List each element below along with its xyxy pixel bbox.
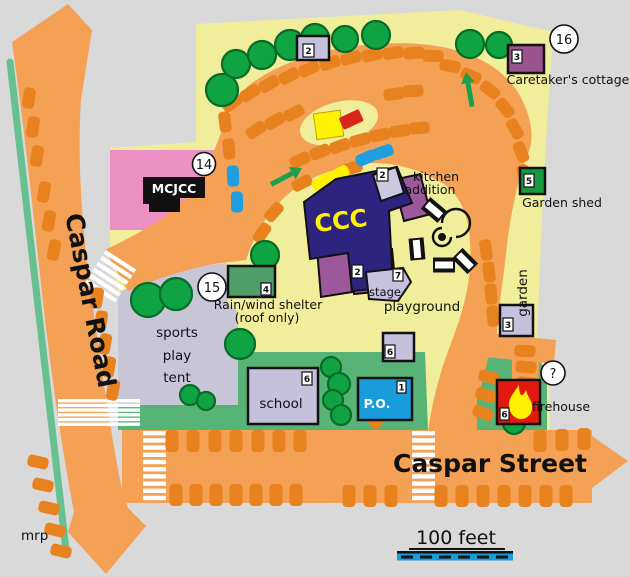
- svg-text:2: 2: [354, 268, 360, 278]
- tree-icon: [248, 41, 276, 69]
- svg-text:5: 5: [526, 177, 532, 187]
- yellow-marker-square: [313, 110, 343, 140]
- svg-text:3: 3: [514, 53, 520, 63]
- door-icon-ccc-south: 2: [352, 265, 363, 278]
- crosswalk-stripe: [412, 438, 435, 442]
- parking-spot: [270, 484, 283, 506]
- crosswalk-stripe: [143, 481, 166, 485]
- parking-spot: [402, 84, 424, 97]
- stage-label: stage: [369, 285, 401, 299]
- tree-icon: [331, 405, 351, 425]
- mrp-label: mrp: [21, 528, 48, 544]
- svg-text:16: 16: [556, 33, 573, 48]
- scale-dash: [401, 556, 413, 559]
- scale-bar: 100 feet: [397, 527, 513, 561]
- scale-dash: [420, 556, 432, 559]
- door-icon-school: 6: [302, 372, 312, 385]
- map-canvas: MCJCC CCC stage: [0, 0, 630, 577]
- tree-icon: [225, 329, 255, 359]
- parking-spot: [484, 283, 498, 305]
- marker-unknown: ?: [541, 361, 565, 385]
- crosswalk-stripe: [143, 460, 166, 464]
- parking-spot: [514, 344, 536, 357]
- crosswalk-stripe: [143, 445, 166, 449]
- parking-spot: [170, 484, 183, 506]
- parking-spot: [49, 543, 72, 559]
- svg-text:7: 7: [395, 272, 401, 282]
- crosswalk-stripe: [143, 474, 166, 478]
- scale-dash: [439, 556, 451, 559]
- parking-spot: [578, 428, 591, 450]
- door-icon-shelter: 4: [261, 283, 271, 296]
- parking-spot: [26, 454, 49, 470]
- scale-dash: [458, 556, 470, 559]
- parking-spot: [515, 360, 537, 373]
- tree-icon: [456, 30, 484, 58]
- garden-label: garden: [515, 269, 531, 317]
- parking-spot-blue: [231, 191, 243, 212]
- tree-icon: [160, 278, 192, 310]
- tree-icon: [222, 50, 250, 78]
- caretakers-cottage-label: Caretaker's cottage: [507, 72, 630, 87]
- crosswalk-stripe: [412, 489, 435, 493]
- parking-spot: [343, 485, 356, 507]
- parking-spot: [230, 430, 243, 452]
- svg-text:2: 2: [305, 47, 311, 57]
- parking-spot: [560, 485, 573, 507]
- svg-text:15: 15: [204, 281, 221, 296]
- parking-spot: [250, 484, 263, 506]
- svg-text:6: 6: [387, 348, 393, 358]
- parking-spot: [252, 430, 265, 452]
- marker-14: 14: [193, 153, 216, 176]
- tree-icon: [197, 392, 215, 410]
- crosswalk-stripe: [412, 496, 435, 500]
- svg-text:14: 14: [196, 158, 213, 173]
- svg-text:?: ?: [550, 367, 557, 382]
- playground-label: playground: [384, 299, 460, 315]
- svg-text:1: 1: [398, 384, 404, 394]
- tree-icon: [362, 21, 390, 49]
- marker-16: 16: [550, 25, 578, 53]
- caspar-community-map: MCJCC CCC stage: [0, 0, 630, 577]
- crosswalk-stripe: [58, 408, 140, 411]
- rain-shelter-label-2: (roof only): [235, 310, 300, 325]
- crosswalk-stripe: [58, 404, 140, 407]
- door-icon-garden-shed: 5: [524, 174, 534, 187]
- crosswalk-stripe: [58, 413, 140, 416]
- door-icon-firehouse: 6: [500, 408, 509, 421]
- parking-spot: [519, 485, 532, 507]
- door-icon-po: 1: [397, 381, 406, 394]
- svg-text:4: 4: [263, 286, 269, 296]
- parking-spot: [187, 430, 200, 452]
- parking-spot: [403, 46, 425, 59]
- parking-spot: [540, 485, 553, 507]
- tree-icon: [131, 283, 165, 317]
- door-icon-east-shed: 3: [503, 318, 513, 331]
- svg-text:6: 6: [304, 375, 310, 385]
- crosswalk-stripe: [58, 423, 140, 426]
- crosswalk-stripe: [412, 481, 435, 485]
- kitchen-label-2: addition: [405, 182, 456, 197]
- crosswalk-stripe: [143, 467, 166, 471]
- parking-spot: [290, 484, 303, 506]
- svg-text:3: 3: [505, 321, 511, 331]
- garden-shed-label: Garden shed: [522, 195, 602, 210]
- parking-spot: [435, 485, 448, 507]
- bench-icon: [410, 238, 425, 259]
- parking-spot-blue: [226, 165, 239, 187]
- bench-icon: [434, 259, 454, 272]
- crosswalk-stripe: [143, 453, 166, 457]
- tree-icon: [332, 26, 358, 52]
- crosswalk-stripe: [143, 431, 166, 435]
- crosswalk-stripe: [143, 438, 166, 442]
- mcjcc-label: MCJCC: [152, 181, 197, 196]
- door-icon-kitchen: 2: [377, 168, 388, 181]
- parking-spot: [556, 429, 569, 451]
- svg-text:6: 6: [501, 411, 507, 421]
- door-icon-caretakers: 3: [512, 50, 522, 63]
- parking-spot: [422, 50, 443, 63]
- svg-text:2: 2: [379, 171, 385, 181]
- door-icon-north-shed: 2: [303, 44, 314, 57]
- scale-label: 100 feet: [416, 527, 496, 549]
- parking-spot: [230, 484, 243, 506]
- parking-spot: [477, 485, 490, 507]
- po-label: P.O.: [364, 396, 391, 411]
- firehouse-label: firehouse: [532, 399, 590, 414]
- sports-label-1: sports: [156, 325, 198, 341]
- parking-spot: [210, 484, 223, 506]
- door-icon-stage: 7: [393, 269, 403, 282]
- parking-spot: [456, 485, 469, 507]
- sports-label-3: tent: [163, 370, 190, 386]
- scale-dash: [496, 556, 508, 559]
- crosswalk-stripe: [143, 496, 166, 500]
- parking-spot: [486, 305, 500, 327]
- door-icon-playground-shed: 6: [385, 345, 395, 358]
- parking-spot: [190, 484, 203, 506]
- parking-spot: [498, 485, 511, 507]
- crosswalk-stripe: [58, 399, 140, 402]
- parking-spot: [31, 477, 54, 493]
- parking-spot: [364, 485, 377, 507]
- school-label: school: [259, 396, 302, 412]
- parking-spot: [222, 138, 236, 160]
- scale-dash: [477, 556, 489, 559]
- caspar-street-label: Caspar Street: [393, 449, 587, 478]
- parking-spot: [166, 430, 179, 452]
- crosswalk-stripe: [412, 431, 435, 435]
- parking-spot: [273, 430, 286, 452]
- crosswalk-stripe: [58, 418, 140, 421]
- parking-spot: [385, 485, 398, 507]
- sports-label-2: play: [163, 348, 192, 364]
- parking-spot: [408, 121, 430, 134]
- parking-spot: [209, 430, 222, 452]
- parking-spot: [294, 430, 307, 452]
- crosswalk-stripe: [143, 489, 166, 493]
